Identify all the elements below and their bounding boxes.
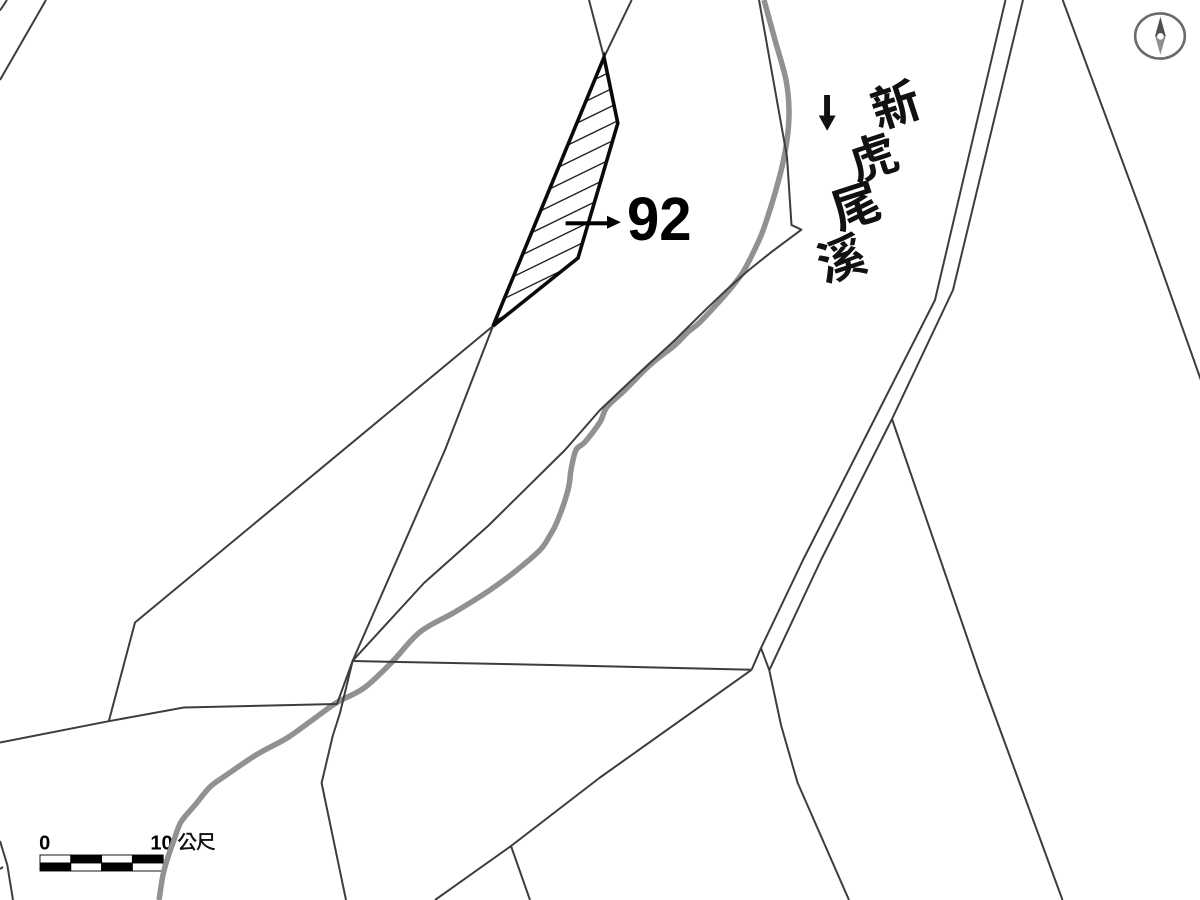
svg-text:92: 92: [627, 185, 692, 253]
svg-text:0: 0: [39, 833, 50, 855]
